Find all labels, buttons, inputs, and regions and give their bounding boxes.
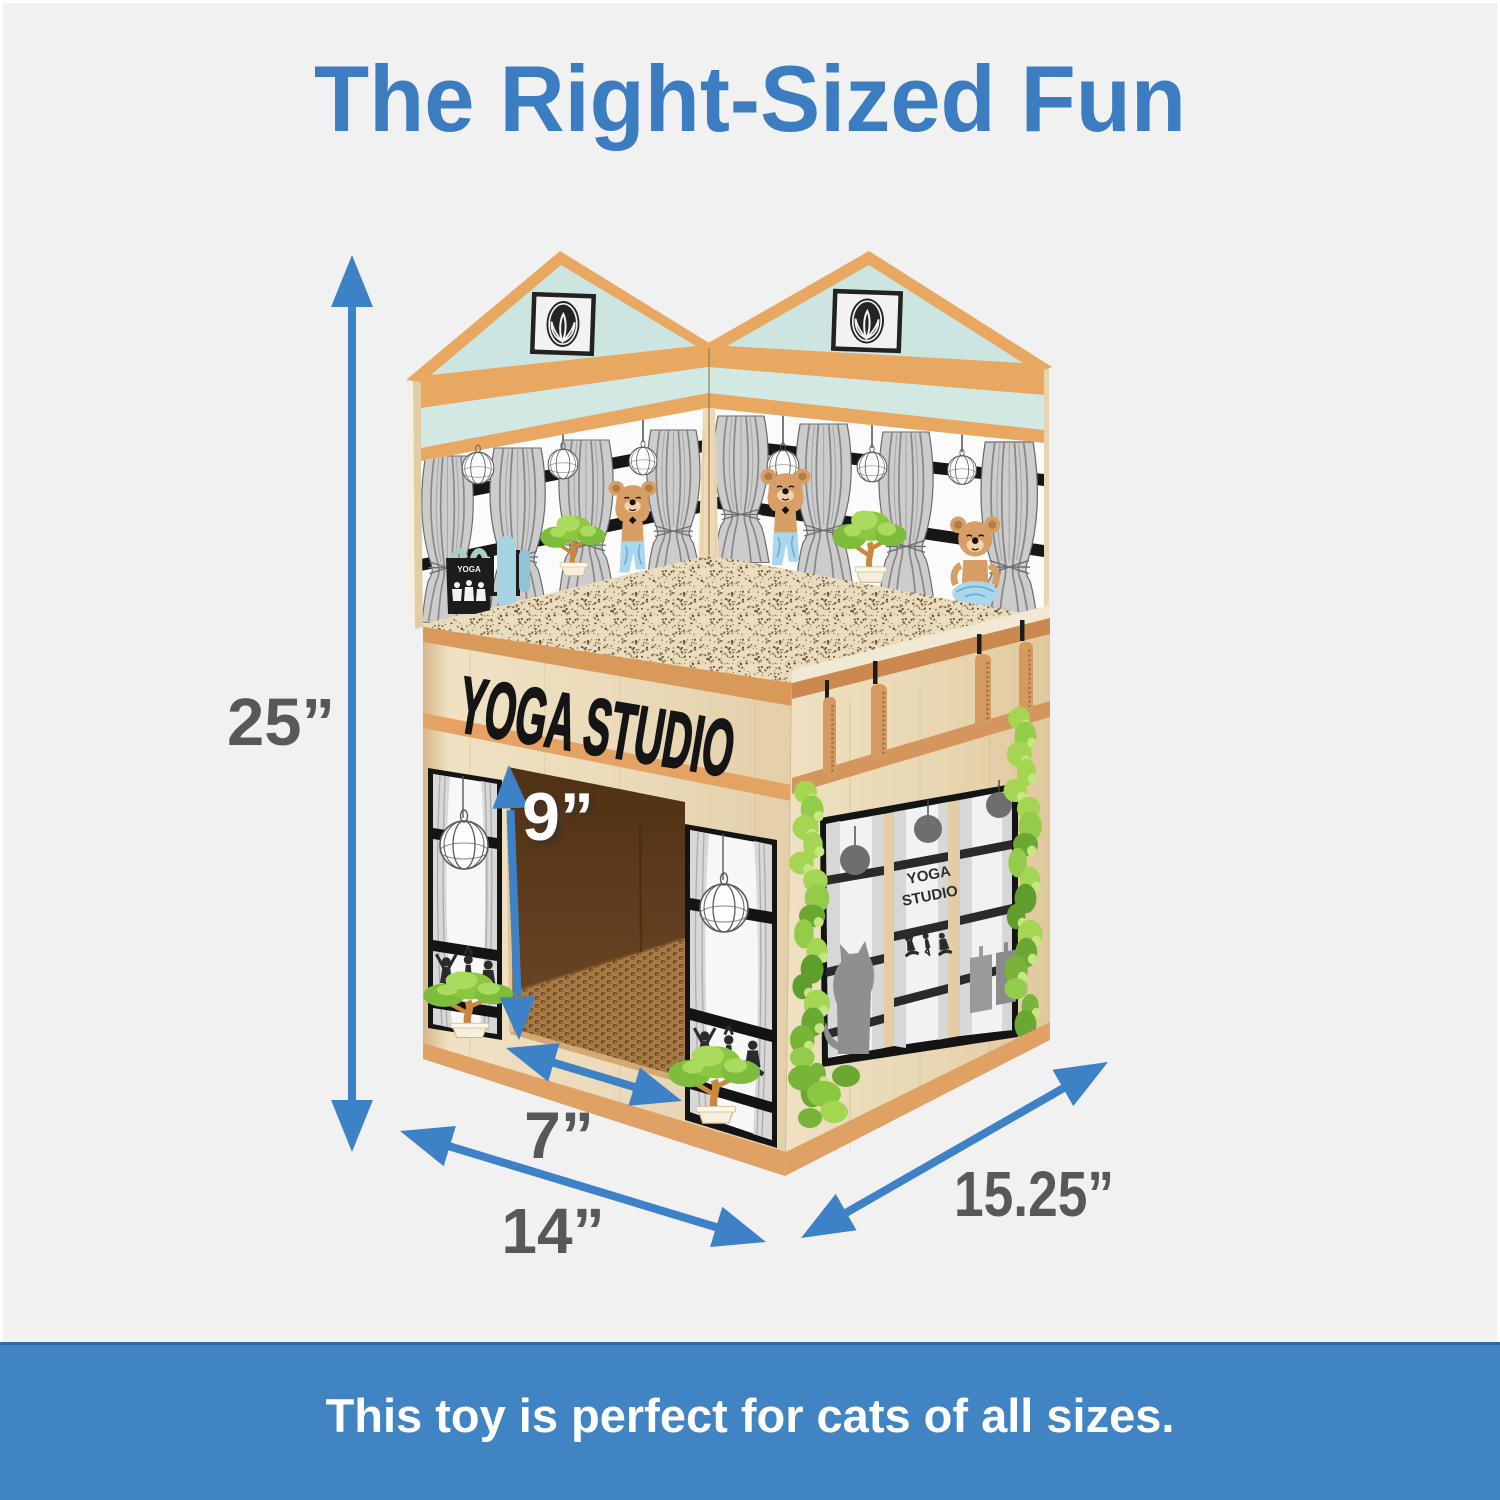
- svg-text:7”: 7”: [524, 1098, 594, 1172]
- svg-text:14”: 14”: [501, 1195, 604, 1267]
- svg-text:The Right-Sized Fun: The Right-Sized Fun: [314, 46, 1186, 151]
- svg-text:25”: 25”: [227, 685, 335, 760]
- svg-text:This toy is perfect for cats o: This toy is perfect for cats of all size…: [326, 1389, 1175, 1442]
- svg-text:9”: 9”: [522, 779, 594, 855]
- svg-text:15.25”: 15.25”: [954, 1158, 1114, 1230]
- svg-text:YOGA: YOGA: [457, 565, 481, 574]
